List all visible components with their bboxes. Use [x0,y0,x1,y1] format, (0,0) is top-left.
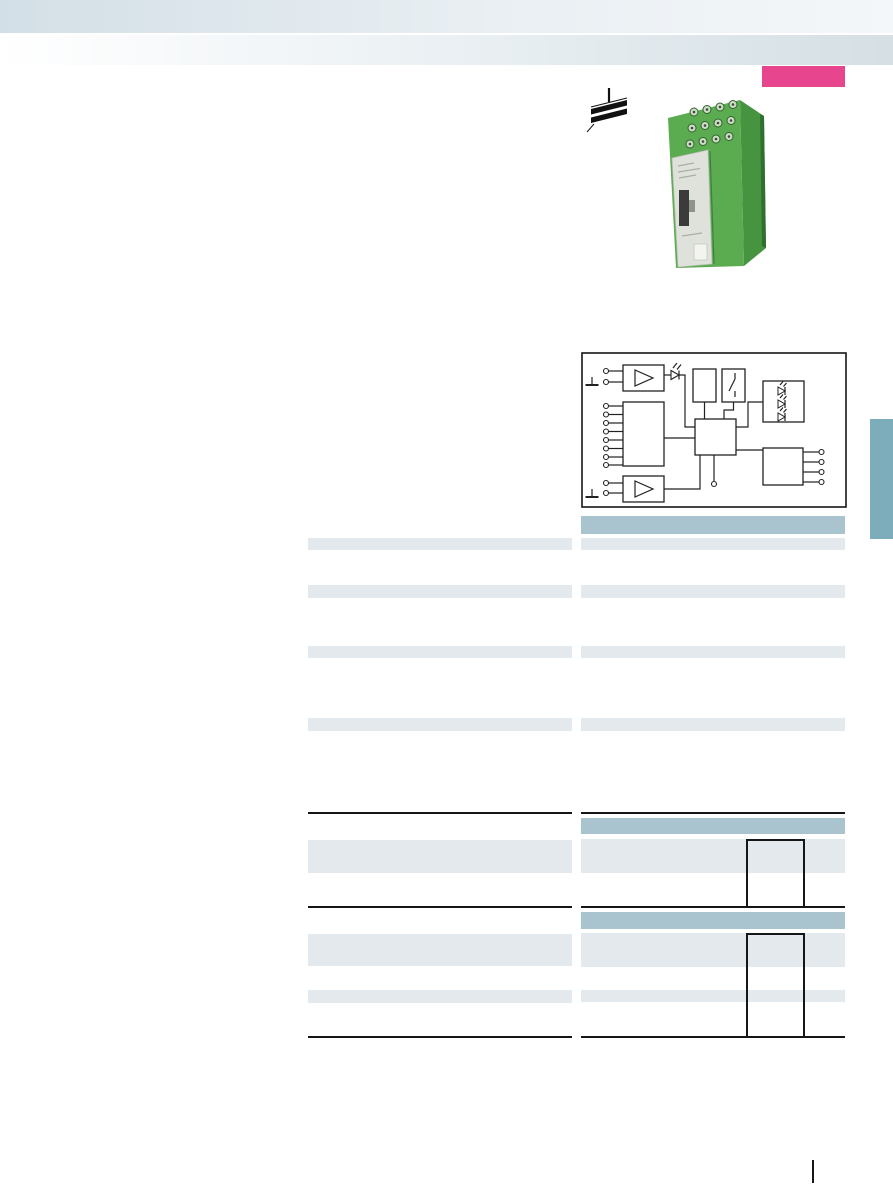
spec-row-stripe [308,718,572,731]
product-photo [652,78,772,273]
spec-table-right-header-bar [581,516,845,534]
table-rule [308,1036,572,1038]
spec-row-stripe [308,585,572,598]
spec-row-stripe [581,538,845,550]
pulse-timing-diagram [746,933,805,1037]
bottom-table2-header-bar [581,912,845,929]
controller-block [695,419,736,455]
spec-row-stripe [308,646,572,658]
pulse-timing-diagram [746,839,805,907]
bottom-row-stripe [581,990,845,1002]
chapter-tab [870,419,893,539]
table-rule [581,812,845,814]
table-rule [308,906,572,908]
table-rule [308,812,572,814]
spec-row-stripe [581,718,845,731]
block-diagram [578,350,850,510]
highlight-badge [762,66,845,87]
bottom-row-stripe [581,933,845,967]
din-rail-mounting-icon [586,86,636,134]
bottom-row-stripe [308,990,572,1003]
spec-row-stripe [581,585,845,598]
power-block [693,369,716,402]
bottom-row-stripe [581,839,845,873]
bottom-row-stripe [308,934,572,966]
table-rule [581,906,845,908]
page-number-separator [812,1160,814,1183]
table-rule [581,1036,845,1038]
header-gradient-band-top [0,0,893,33]
bottom-table1-header-bar [581,818,845,834]
spec-row-stripe [581,646,845,658]
spec-row-stripe [308,538,572,550]
bottom-row-stripe [308,840,572,873]
catalog-page [0,0,893,1186]
header-gradient-band-bottom [0,35,893,65]
module-dip-slider [679,190,689,226]
